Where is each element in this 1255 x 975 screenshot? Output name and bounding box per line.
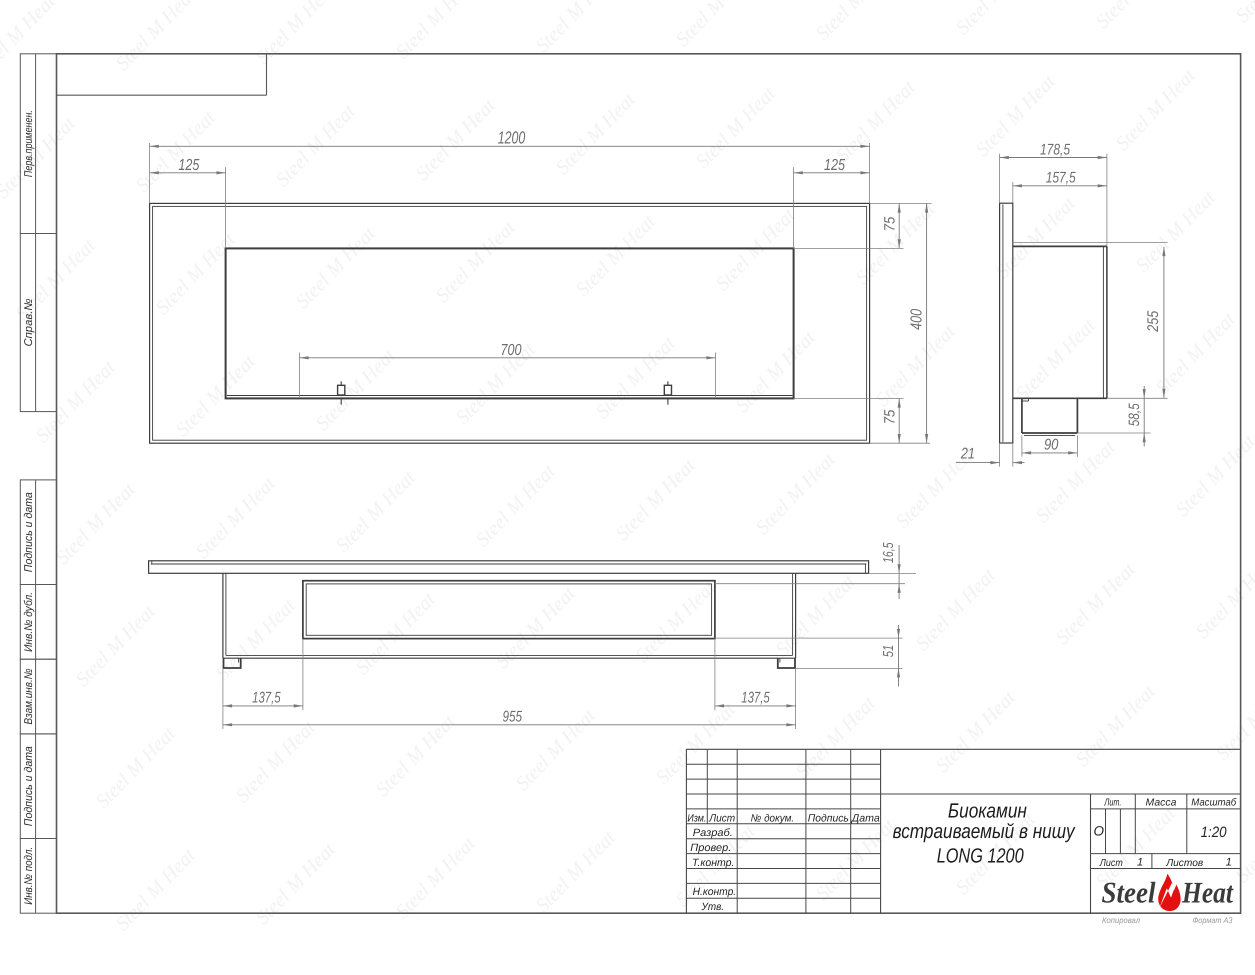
svg-text:255: 255	[1145, 310, 1162, 332]
svg-text:Разраб.: Разраб.	[693, 827, 733, 839]
svg-text:Изм.: Изм.	[687, 812, 706, 824]
svg-text:Масса: Масса	[1146, 797, 1177, 808]
svg-text:157,5: 157,5	[1046, 170, 1076, 187]
svg-text:Справ.№: Справ.№	[23, 299, 35, 347]
svg-text:Дата: Дата	[851, 812, 880, 824]
svg-text:Н.контр.: Н.контр.	[693, 886, 737, 898]
svg-text:Формат А3: Формат А3	[1193, 916, 1233, 925]
svg-text:Подпись и дата: Подпись и дата	[23, 746, 35, 826]
svg-text:58,5: 58,5	[1126, 403, 1143, 427]
svg-text:1: 1	[1226, 856, 1232, 868]
svg-text:Подпись: Подпись	[808, 812, 849, 824]
svg-text:955: 955	[503, 708, 523, 725]
svg-text:Биокамин: Биокамин	[948, 799, 1027, 822]
svg-text:700: 700	[501, 342, 522, 359]
svg-text:125: 125	[178, 157, 199, 174]
svg-text:Подпись и дата: Подпись и дата	[23, 492, 35, 572]
svg-text:Листов: Листов	[1165, 858, 1204, 869]
svg-text:Heat: Heat	[1181, 877, 1234, 910]
svg-text:Лист: Лист	[708, 812, 735, 824]
svg-text:О: О	[1093, 824, 1104, 839]
svg-text:51: 51	[881, 645, 897, 658]
svg-text:178,5: 178,5	[1040, 141, 1070, 158]
svg-text:Утв.: Утв.	[701, 901, 724, 913]
svg-text:Лист: Лист	[1099, 858, 1123, 869]
svg-text:Взам.инв.№: Взам.инв.№	[23, 669, 35, 725]
svg-text:21: 21	[960, 446, 975, 463]
svg-text:встраиваемый в нишу: встраиваемый в нишу	[893, 820, 1076, 843]
svg-text:Копировал: Копировал	[1102, 916, 1140, 925]
svg-text:137,5: 137,5	[252, 690, 281, 707]
svg-text:Лит.: Лит.	[1104, 797, 1122, 808]
svg-text:137,5: 137,5	[741, 690, 770, 707]
svg-text:Масштаб: Масштаб	[1191, 797, 1237, 808]
svg-text:Перв.применен.: Перв.применен.	[23, 110, 35, 177]
svg-text:1: 1	[1137, 856, 1143, 868]
svg-text:75: 75	[881, 216, 898, 231]
svg-text:125: 125	[824, 157, 845, 174]
svg-text:Т.контр.: Т.контр.	[692, 857, 735, 869]
svg-text:Инв.№ дубл.: Инв.№ дубл.	[23, 592, 35, 652]
svg-text:1200: 1200	[498, 128, 526, 148]
svg-text:Steel: Steel	[1102, 877, 1157, 910]
svg-text:Провер.: Провер.	[690, 842, 731, 854]
svg-text:400: 400	[908, 309, 925, 330]
svg-text:LONG 1200: LONG 1200	[937, 845, 1024, 868]
svg-text:75: 75	[881, 409, 898, 424]
svg-text:1:20: 1:20	[1201, 824, 1228, 841]
svg-text:16,5: 16,5	[881, 542, 897, 563]
svg-text:90: 90	[1044, 436, 1059, 453]
svg-text:№ докум.: № докум.	[751, 812, 795, 824]
svg-text:Инв.№ подл.: Инв.№ подл.	[23, 847, 35, 905]
